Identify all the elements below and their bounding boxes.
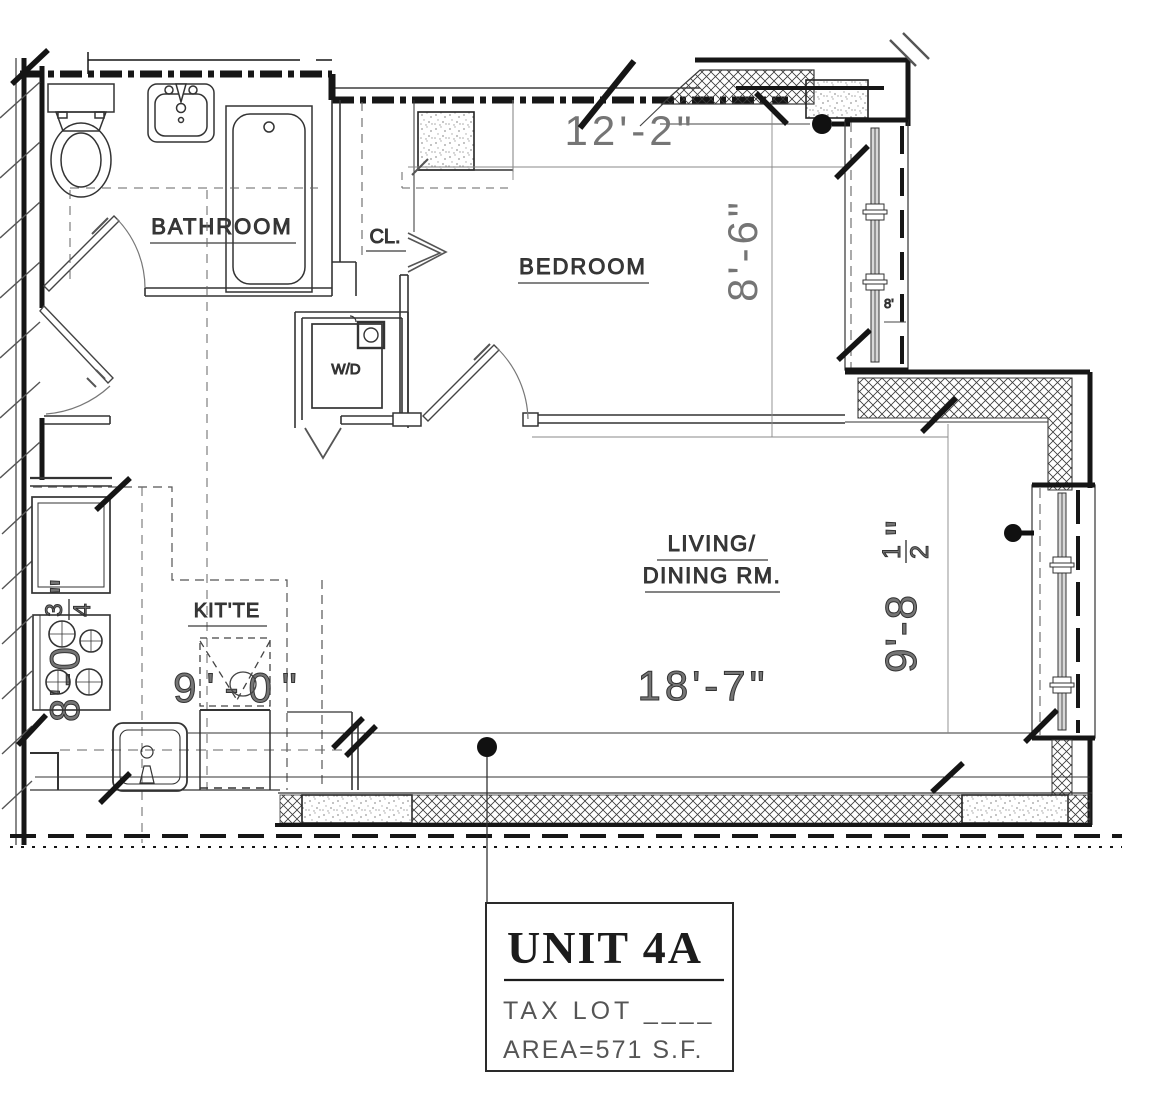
left-wall-hatch-ticks: [0, 82, 40, 809]
closet-label: CL.: [369, 226, 400, 248]
dim-kitchen-width: 9'-0": [173, 664, 307, 711]
window-tag-text: 8': [884, 296, 894, 311]
living-label-line1: LIVING/: [668, 531, 757, 556]
dim-kitchen-depth: 8'-0 3 4 ": [41, 579, 96, 722]
concrete-section: [302, 795, 412, 823]
bedroom-label: BEDROOM: [519, 254, 647, 279]
closet: CL.: [332, 100, 513, 296]
living-window: [1004, 485, 1095, 738]
dim-living-depth: 9'-8 1 2 ": [877, 520, 934, 673]
dim-bedroom-width: 12'-2": [565, 107, 696, 154]
column-marker-dot: [812, 114, 832, 134]
floor-plan-drawing: 8': [0, 0, 1168, 1100]
unit-tax-lot: TAX LOT ____: [503, 997, 715, 1025]
wd-bifold-door: [305, 428, 341, 458]
concrete-column: [806, 80, 868, 118]
living-label-line2: DINING RM.: [643, 563, 781, 588]
bathroom-door: [44, 216, 145, 291]
svg-text:9'-8: 9'-8: [877, 593, 926, 673]
top-demising-wall: [20, 52, 788, 100]
dim-living-width: 18'-7": [638, 662, 769, 709]
svg-text:": ": [877, 520, 926, 536]
bedroom: BEDROOM: [393, 254, 845, 426]
unit-title: UNIT 4A: [507, 922, 703, 973]
kitchenette-label: KIT'TE: [194, 600, 261, 622]
bedroom-door: [423, 344, 528, 421]
bathroom-sink: [148, 84, 214, 142]
concrete-section: [962, 795, 1068, 823]
bathtub: [226, 106, 312, 292]
unit-area: AREA=571 S.F.: [503, 1036, 703, 1064]
bottom-exterior-wall: [10, 793, 1122, 847]
dim-bedroom-depth: 8'-6": [719, 198, 766, 302]
living-north-hatched-wall: [845, 372, 1090, 490]
entry-door: [40, 306, 113, 424]
window-marker-dot: [1004, 524, 1022, 542]
bathroom-label: BATHROOM: [151, 214, 292, 239]
closet-bifold-door: [408, 233, 446, 272]
unit-label-box: UNIT 4A TAX LOT ____ AREA=571 S.F.: [486, 903, 733, 1071]
leader-dot: [477, 737, 497, 757]
svg-text:": ": [41, 579, 88, 594]
svg-text:1: 1: [878, 545, 906, 559]
svg-text:8'-6": 8'-6": [719, 198, 766, 302]
wd-label: W/D: [331, 361, 360, 378]
bathroom: BATHROOM: [44, 84, 340, 296]
svg-text:2: 2: [906, 545, 934, 559]
washer-dryer-closet: W/D: [295, 312, 408, 458]
toilet: [48, 84, 114, 197]
floor-plan-canvas: 8': [0, 0, 1168, 1100]
